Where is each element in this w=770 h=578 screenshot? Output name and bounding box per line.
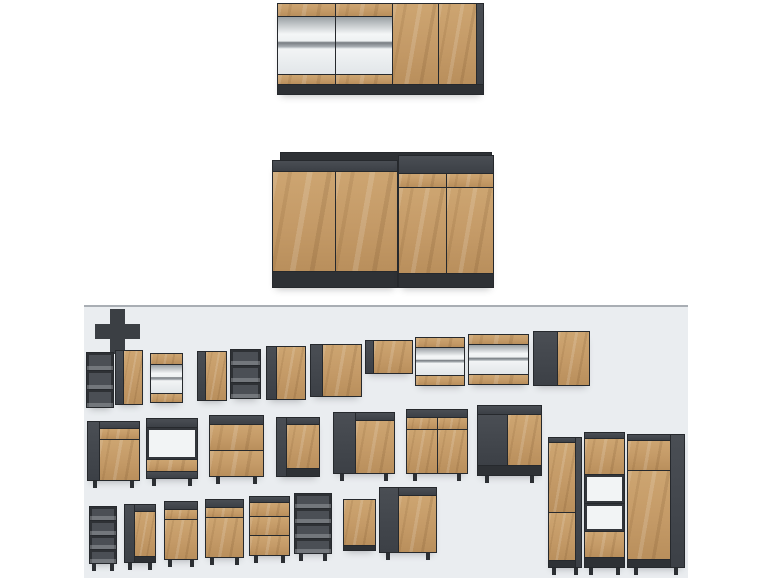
hero-wall-unit <box>277 3 484 95</box>
dark-front <box>534 332 557 385</box>
cabinet-leg <box>93 481 97 488</box>
open-front <box>90 507 116 520</box>
darker-front <box>273 272 397 287</box>
wood-front <box>165 510 197 520</box>
wall-cabinet-door-3 <box>266 346 306 400</box>
wood-front <box>439 4 476 84</box>
wood-front <box>273 172 335 272</box>
dark-front <box>356 413 394 420</box>
open-front <box>87 353 113 370</box>
dark-front <box>311 345 322 396</box>
wall-open-shelf-2 <box>230 349 261 399</box>
wall-cabinet-door <box>115 350 143 405</box>
open-front <box>231 350 260 365</box>
part-group <box>135 505 155 562</box>
cabinet-leg <box>457 474 461 481</box>
base-door-narrow <box>124 504 156 563</box>
part-group <box>287 418 319 476</box>
cabinet-leg <box>92 564 96 571</box>
cabinet-leg <box>281 556 285 563</box>
dark-front <box>125 505 134 562</box>
wood-front <box>374 341 412 373</box>
base-sink <box>379 487 437 553</box>
tall-fridge-housing <box>627 434 685 568</box>
wood-front <box>287 425 319 468</box>
base-drawer-door <box>87 421 140 481</box>
part-group <box>399 488 436 552</box>
cabinet-leg <box>148 563 152 570</box>
wall-cabinet-door-4 <box>310 344 362 397</box>
part-group <box>628 435 670 567</box>
wall-corner-cabinet <box>533 331 590 386</box>
dark-front <box>399 488 436 495</box>
wall-glass-horizontal-2 <box>468 334 529 385</box>
dark-front <box>273 161 397 171</box>
wood-front <box>469 335 528 344</box>
cabinet-leg <box>485 476 489 483</box>
cabinet-leg <box>616 568 620 575</box>
dark-front <box>380 488 398 552</box>
glass-front <box>278 17 335 74</box>
cabinet-leg <box>188 479 192 486</box>
open-front <box>90 536 116 549</box>
wood-front <box>210 425 263 450</box>
open-front <box>295 494 331 508</box>
dark-front <box>478 415 507 466</box>
cabinet-leg <box>168 560 172 567</box>
dark-front <box>366 341 373 373</box>
base-drawer-door-narrow-2 <box>205 499 244 558</box>
wood-front <box>151 394 182 402</box>
cabinet-leg <box>413 474 417 481</box>
cabinet-leg <box>634 568 638 575</box>
wood-front <box>508 415 541 466</box>
dark-front <box>88 422 99 480</box>
part-group <box>356 413 394 473</box>
cabinet-leg <box>110 564 114 571</box>
wood-front <box>278 75 335 84</box>
part-group <box>407 430 467 473</box>
wood-front <box>416 338 464 347</box>
cabinet-leg <box>299 554 303 561</box>
dark-front <box>287 418 319 424</box>
cabinet-leg <box>552 568 556 575</box>
wood-front <box>399 188 446 273</box>
plus-icon <box>95 309 140 354</box>
wood-front <box>151 354 182 364</box>
wood-front <box>147 460 197 471</box>
wood-front <box>250 503 289 516</box>
cabinet-leg <box>589 568 593 575</box>
cabinet-leg <box>216 477 220 484</box>
cabinet-leg <box>530 476 534 483</box>
dark-front <box>147 419 197 427</box>
wood-front <box>407 418 437 430</box>
dark-front <box>147 472 197 478</box>
wood-front <box>407 430 437 473</box>
base-drawer-2doors <box>406 409 468 474</box>
wood-front <box>100 440 139 480</box>
dark-front <box>478 406 541 414</box>
wood-front <box>438 430 468 473</box>
dark-front <box>250 497 289 502</box>
darker-front <box>478 466 541 475</box>
open-front <box>295 524 331 538</box>
dark-front <box>100 422 139 428</box>
cabinet-leg <box>340 474 344 481</box>
wood-front <box>549 513 575 560</box>
wood-front <box>336 172 398 272</box>
open-front <box>90 550 116 563</box>
wall-cabinet-door-2 <box>197 351 227 401</box>
part-group <box>549 438 575 567</box>
cabinet-leg <box>323 554 327 561</box>
wood-front <box>250 517 289 536</box>
part-group <box>478 415 541 466</box>
wood-front <box>469 375 528 384</box>
base-door-2 <box>333 412 395 474</box>
part-group <box>336 4 393 84</box>
wood-front <box>585 439 624 474</box>
part-group <box>407 418 467 430</box>
wood-front <box>135 512 155 556</box>
wood-front <box>206 508 243 518</box>
wood-front <box>278 4 335 16</box>
darker-front <box>344 546 375 550</box>
glass-front <box>336 17 393 74</box>
dark-front <box>576 438 581 567</box>
wood-front <box>399 496 436 552</box>
dark-front <box>210 416 263 424</box>
wood-front <box>124 351 142 404</box>
dark-front <box>165 502 197 509</box>
dark-front <box>477 4 483 84</box>
wood-front <box>336 75 393 84</box>
darker-front <box>399 274 493 287</box>
dark-front <box>549 438 575 442</box>
dark-front <box>407 410 467 417</box>
open-front <box>295 539 331 553</box>
dark-front <box>206 500 243 507</box>
cabinet-leg <box>386 553 390 560</box>
part-group <box>399 174 493 187</box>
darker-front <box>135 557 155 563</box>
base-door <box>276 417 320 477</box>
dark-front <box>267 347 276 399</box>
wood-front <box>628 471 670 559</box>
wood-front <box>336 4 393 16</box>
wood-front <box>585 532 624 557</box>
cabinet-leg <box>152 479 156 486</box>
wood-front <box>558 332 590 385</box>
cabinet-leg <box>190 560 194 567</box>
wood-front <box>250 536 289 555</box>
wood-front <box>393 4 438 84</box>
wood-front <box>628 441 670 470</box>
glass-front <box>469 345 528 373</box>
part-group <box>100 422 139 480</box>
dark-front <box>628 435 670 440</box>
wood-front <box>438 418 468 430</box>
cabinet-leg <box>128 563 132 570</box>
cabinet-leg <box>235 558 239 565</box>
cabinet-leg <box>426 553 430 560</box>
wood-front <box>447 188 494 273</box>
cabinet-leg <box>254 556 258 563</box>
base-corner <box>477 405 542 476</box>
dark-front <box>334 413 355 473</box>
light-front <box>585 504 624 531</box>
part-group <box>273 172 397 272</box>
open-front <box>295 509 331 523</box>
wall-glass-horizontal <box>415 337 465 386</box>
front-panel-door <box>343 499 376 551</box>
dark-front <box>277 418 286 476</box>
wood-front <box>100 429 139 439</box>
wood-front <box>323 345 362 396</box>
open-front <box>231 366 260 381</box>
cabinet-leg <box>574 568 578 575</box>
wood-front <box>344 500 375 545</box>
dark-front <box>399 156 493 173</box>
glass-front <box>416 348 464 374</box>
cabinet-leg <box>384 474 388 481</box>
base-open-rack <box>89 506 117 564</box>
tall-pantry <box>548 437 582 568</box>
hero-base-right-unit <box>398 155 494 288</box>
wall-bridge-cabinet <box>365 340 413 374</box>
open-front <box>87 371 113 388</box>
part-group <box>278 4 483 84</box>
wall-cabinet-glass <box>150 353 183 403</box>
darker-front <box>585 558 624 567</box>
open-front <box>90 521 116 534</box>
wood-front <box>165 520 197 559</box>
darker-front <box>628 560 670 567</box>
wood-front <box>206 352 226 400</box>
base-open-unit <box>294 493 332 554</box>
darker-front <box>287 469 319 476</box>
dark-front <box>671 435 684 567</box>
kitchen-product-image <box>0 0 770 578</box>
base-drawers-2 <box>209 415 264 477</box>
wood-front <box>447 174 494 187</box>
wood-front <box>399 174 446 187</box>
hero-base-left-unit <box>272 160 398 288</box>
open-front <box>87 390 113 407</box>
cabinet-leg <box>674 568 678 575</box>
wood-front <box>356 421 394 473</box>
cabinet-leg <box>210 558 214 565</box>
part-group <box>399 188 493 273</box>
dark-front <box>135 505 155 511</box>
dark-front <box>116 351 123 404</box>
darker-front <box>278 85 483 94</box>
light-front <box>147 428 197 459</box>
wood-front <box>206 518 243 557</box>
wood-front <box>277 347 305 399</box>
tall-oven-housing <box>584 432 625 568</box>
base-drawer-door-narrow <box>164 501 198 560</box>
wall-open-shelf-small <box>86 352 114 408</box>
wood-front <box>416 376 464 385</box>
base-drawers-3 <box>249 496 290 556</box>
light-front <box>585 475 624 502</box>
wood-front <box>210 451 263 476</box>
wood-front <box>549 443 575 512</box>
cabinet-leg <box>130 481 134 488</box>
dark-front <box>198 352 205 400</box>
darker-front <box>549 561 575 567</box>
cabinet-leg <box>253 477 257 484</box>
part-group <box>278 4 335 84</box>
dark-front <box>585 433 624 438</box>
open-front <box>231 383 260 398</box>
base-oven-housing <box>146 418 198 479</box>
glass-front <box>151 365 182 393</box>
